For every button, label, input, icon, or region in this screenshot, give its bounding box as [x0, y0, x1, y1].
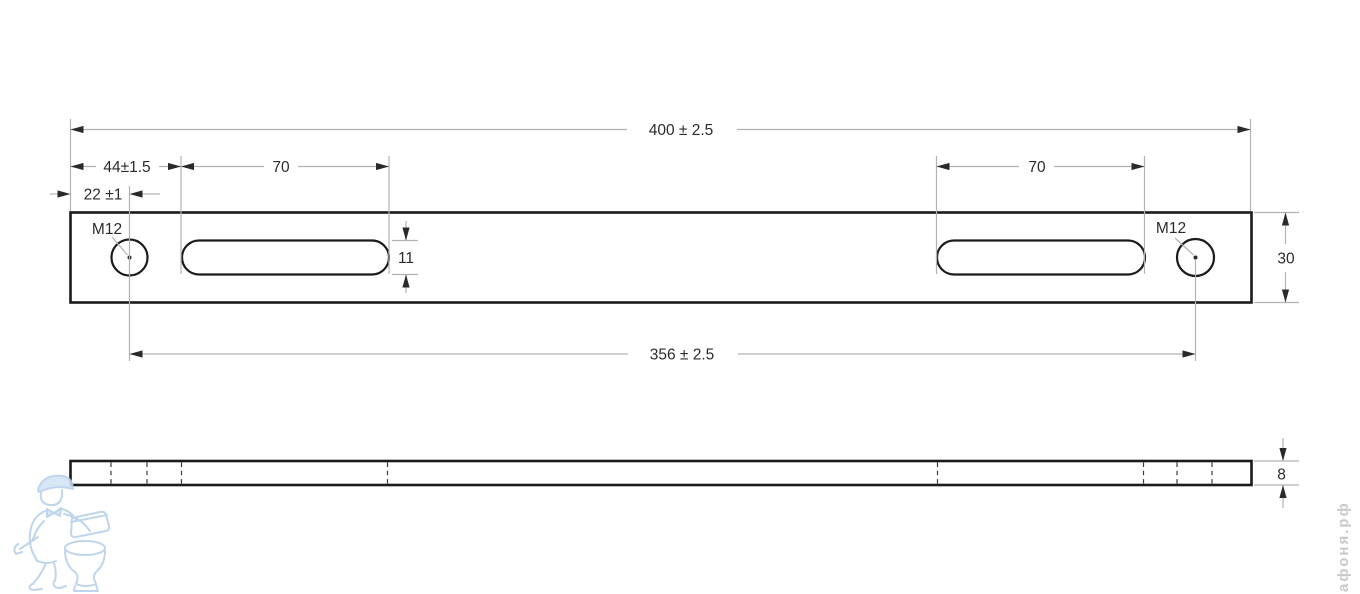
plumber-jacket	[30, 511, 45, 561]
plate-top-view	[71, 213, 1252, 303]
plumber-shoe-left	[29, 584, 42, 590]
side-view	[71, 461, 1252, 485]
slot-right-length-label: 70	[1028, 159, 1046, 176]
thread-left-label: M12	[92, 221, 122, 238]
plumber-leg-left	[33, 563, 46, 584]
plate-thickness-label: 8	[1277, 467, 1286, 484]
dimension-plate-width: 30	[1277, 213, 1295, 303]
dimension-end-to-slot: 44±1.5	[71, 159, 182, 176]
plumber-cap	[38, 476, 73, 492]
dimension-overall-length: 400 ± 2.5	[71, 122, 1251, 139]
dimension-slot-left-length: 70	[181, 159, 389, 176]
plumber-watermark-logo	[14, 476, 109, 591]
thread-right-label: M12	[1156, 220, 1186, 237]
slot-left-length-label: 70	[272, 159, 290, 176]
toilet-rim	[65, 541, 105, 555]
plate-width-label: 30	[1277, 251, 1295, 268]
hole-spacing-label: 356 ± 2.5	[650, 346, 715, 363]
dimension-hole-spacing: 356 ± 2.5	[130, 346, 1196, 363]
dimension-slot-right-length: 70	[937, 159, 1145, 176]
hole-right-center-dot	[1194, 256, 1198, 260]
dimension-end-to-hole-center: 22 ±1	[50, 186, 160, 203]
technical-drawing-page: 400 ± 2.5 44±1.5 70 70 22 ±1 M12	[0, 0, 1360, 594]
overall-length-label: 400 ± 2.5	[649, 122, 714, 139]
plate-side-view	[71, 461, 1252, 485]
plumber-face	[41, 490, 62, 505]
plumber-shoe-right	[54, 581, 66, 588]
dimension-plate-thickness: 8	[1277, 438, 1286, 508]
site-watermark-text: афоня.рф	[1335, 501, 1352, 592]
slot-width-label: 11	[398, 250, 414, 267]
flat-bar-drawing: 400 ± 2.5 44±1.5 70 70 22 ±1 M12	[0, 0, 1360, 594]
plumber-bowtie	[47, 508, 61, 517]
top-view	[71, 213, 1252, 303]
end-to-slot-label: 44±1.5	[103, 159, 150, 176]
end-to-hole-center-label: 22 ±1	[84, 186, 123, 203]
plumber-leg-right	[54, 563, 56, 581]
